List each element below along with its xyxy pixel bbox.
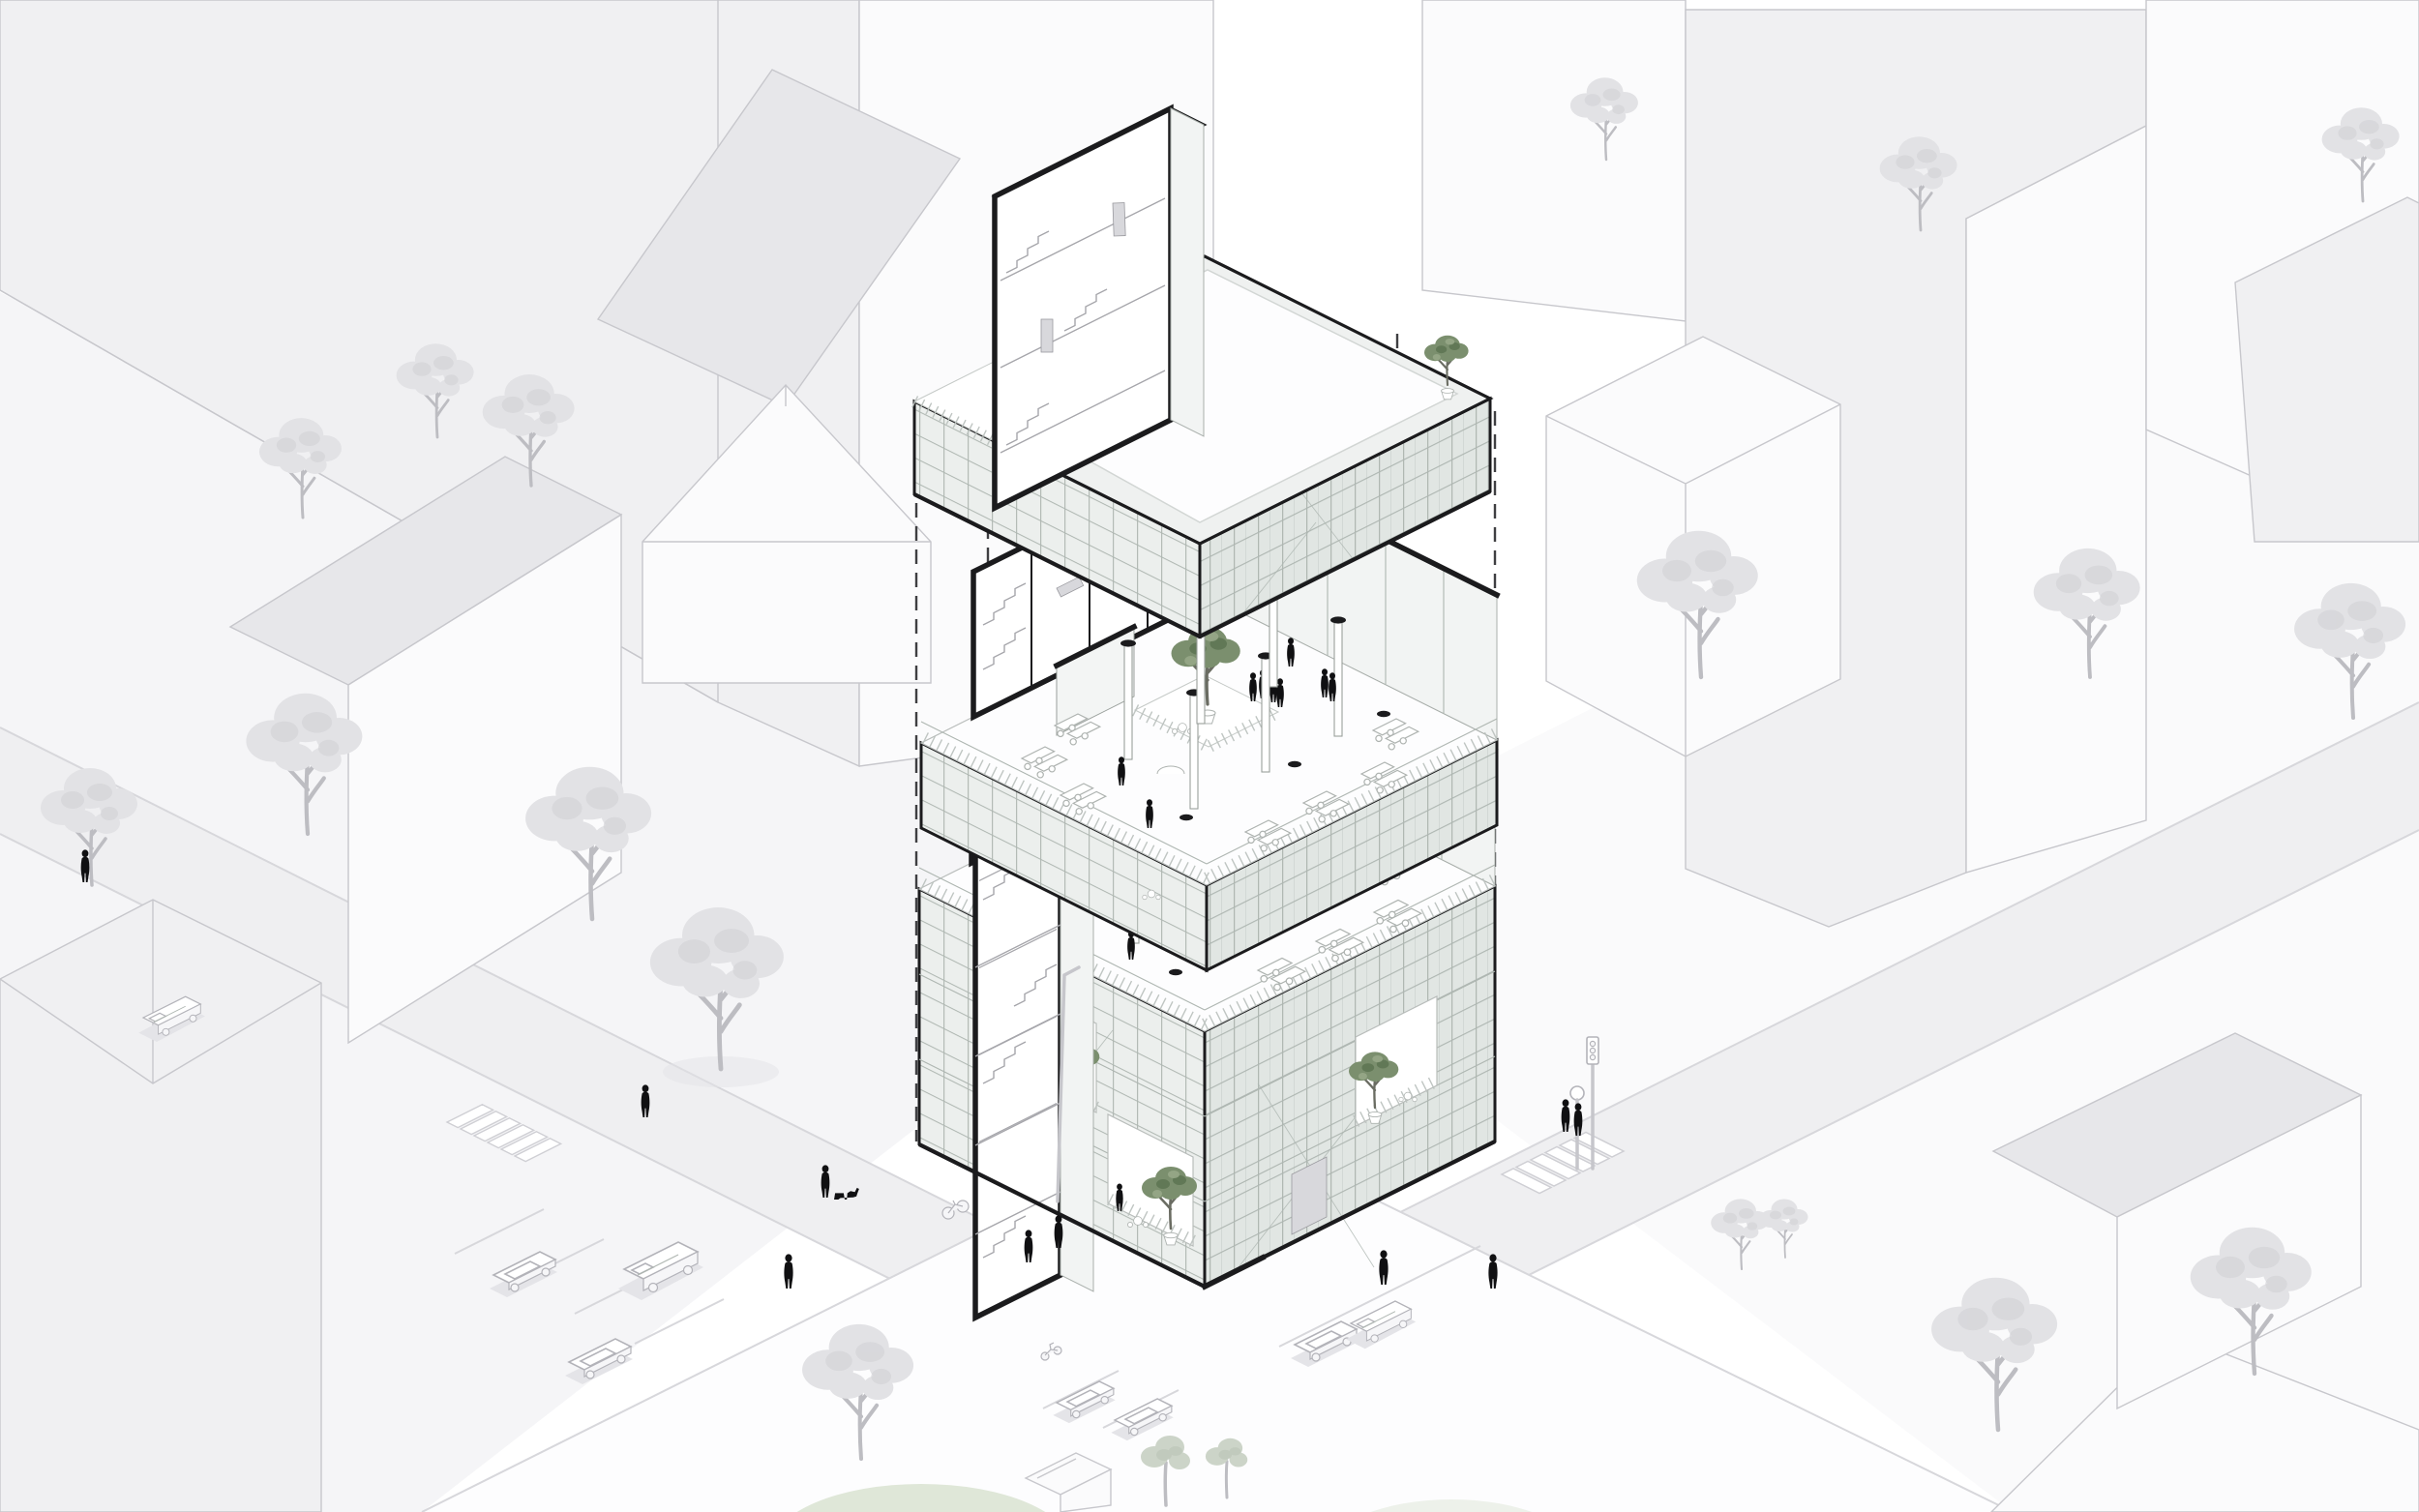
illustration-canvas (0, 0, 2419, 1512)
exploded-axonometric-illustration (0, 0, 2419, 1512)
context-block-right-face (1966, 126, 2146, 873)
context-block-bottom-left (0, 900, 321, 1512)
context-slab-top-right (1422, 0, 1686, 321)
